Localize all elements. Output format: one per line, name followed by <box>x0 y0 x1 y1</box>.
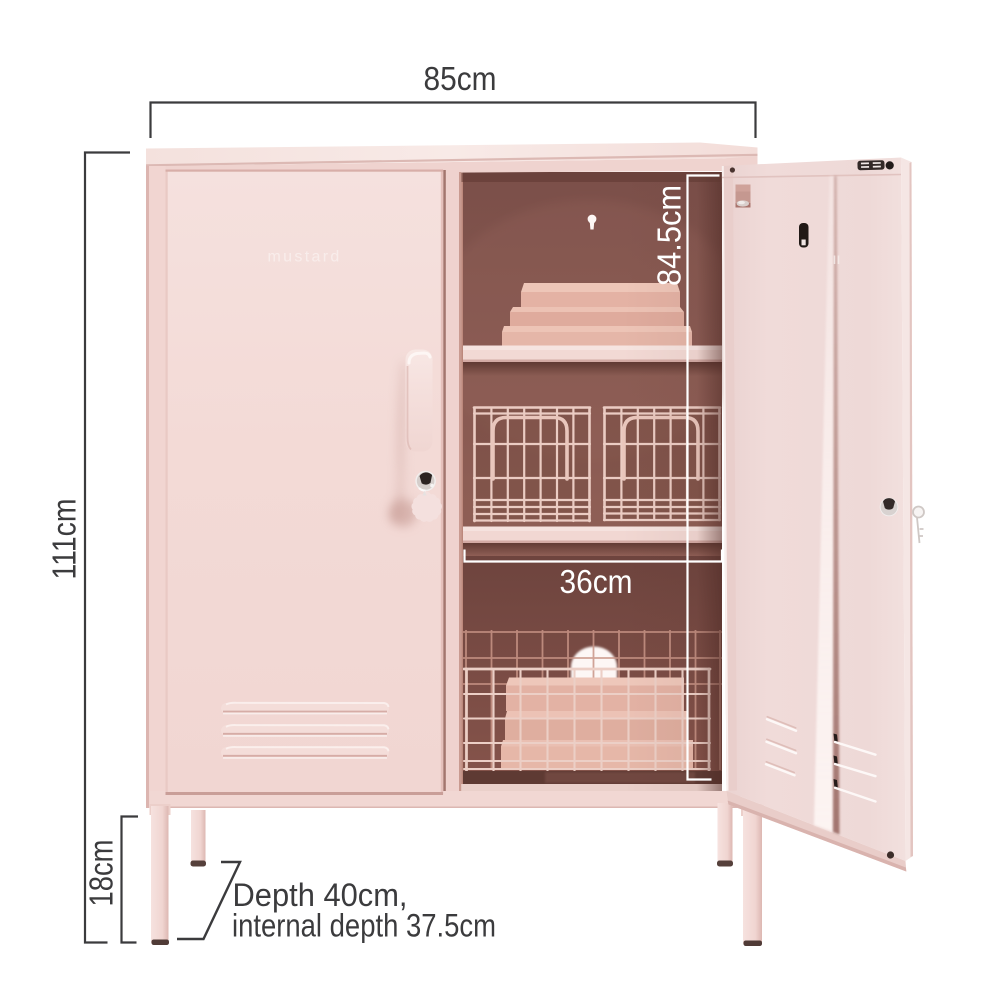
svg-text:internal depth 37.5cm: internal depth 37.5cm <box>232 908 496 944</box>
svg-text:mustard: mustard <box>268 249 341 266</box>
svg-text:85cm: 85cm <box>424 60 497 97</box>
svg-text:36cm: 36cm <box>560 563 633 600</box>
svg-text:111cm: 111cm <box>46 499 83 580</box>
svg-text:18cm: 18cm <box>83 840 120 907</box>
svg-text:84.5cm: 84.5cm <box>651 185 688 286</box>
